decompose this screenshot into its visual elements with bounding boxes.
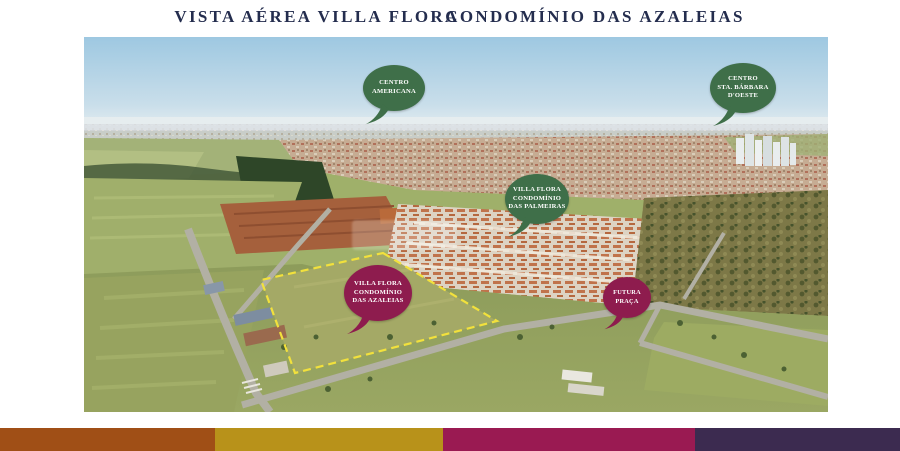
- pin-label: CENTRO STA. BÁRBARA D'OESTE: [717, 75, 768, 102]
- pin-tail-icon: [345, 314, 370, 335]
- pin-label: VILLA FLORA CONDOMÍNIO DAS AZALEIAS: [352, 280, 403, 307]
- pin-bubble: VILLA FLORA CONDOMÍNIO DAS AZALEIAS: [344, 265, 412, 321]
- footer-bar-magenta: [443, 428, 695, 451]
- map-pin-centro-americana: CENTRO AMERICANA: [363, 65, 425, 111]
- watermark: [352, 220, 456, 250]
- pin-tail-icon: [711, 106, 736, 127]
- highrise-cluster: [736, 134, 796, 166]
- footer-bar-purple: [695, 428, 900, 451]
- pin-label: CENTRO AMERICANA: [372, 79, 416, 97]
- page-title-right: CONDOMÍNIO DAS AZALEIAS: [445, 7, 744, 27]
- page: VISTA AÉREA VILLA FLORA CONDOMÍNIO DAS A…: [0, 0, 900, 451]
- pin-bubble: FUTURA PRAÇA: [603, 277, 651, 318]
- page-title-left: VISTA AÉREA VILLA FLORA: [174, 7, 459, 27]
- footer-bar-brown: [0, 428, 215, 451]
- map-pin-villa-flora-palmeiras: VILLA FLORA CONDOMÍNIO DAS PALMEIRAS: [505, 174, 569, 224]
- map-pin-centro-sta-barbara-doeste: CENTRO STA. BÁRBARA D'OESTE: [710, 63, 776, 113]
- footer-color-bars: [0, 428, 900, 451]
- map-pin-villa-flora-azaleias: VILLA FLORA CONDOMÍNIO DAS AZALEIAS: [344, 265, 412, 321]
- pin-tail-icon: [506, 217, 531, 238]
- pin-tail-icon: [603, 313, 623, 330]
- pin-tail-icon: [364, 104, 389, 125]
- pin-label: VILLA FLORA CONDOMÍNIO DAS PALMEIRAS: [508, 186, 565, 213]
- pin-label: FUTURA PRAÇA: [613, 289, 641, 306]
- map-pin-futura-praca: FUTURA PRAÇA: [603, 277, 651, 318]
- aerial-photo: CENTRO AMERICANA CENTRO STA. BÁRBARA D'O…: [84, 37, 828, 412]
- footer-bar-gold: [215, 428, 443, 451]
